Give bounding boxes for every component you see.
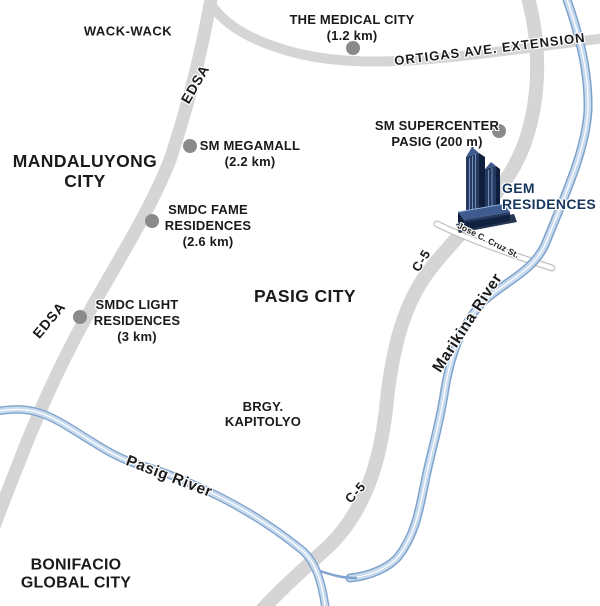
property-label-gem-residences: GEM RESIDENCES [502,181,596,212]
area-label-wack-wack: WACK-WACK [84,25,172,40]
poi-distance: (2.2 km) [200,154,300,170]
poi-distance: (2.6 km) [156,234,261,250]
poi-name: THE MEDICAL CITY [289,12,414,28]
poi-distance: (3 km) [85,329,190,345]
vicinity-map: WACK-WACK MANDALUYONG CITY PASIG CITY BR… [0,0,600,606]
poi-distance: (1.2 km) [289,28,414,44]
area-label-mandaluyong-city: MANDALUYONG CITY [5,151,165,191]
poi-label-sm-supercenter-pasig: SM SUPERCENTER PASIG (200 m) [375,118,499,150]
poi-marker-sm-megamall [183,139,197,153]
poi-label-smdc-fame: SMDC FAME RESIDENCES (2.6 km) [156,202,261,250]
poi-name: SMDC LIGHT RESIDENCES [85,297,190,329]
river-marikina-casing [350,0,588,578]
poi-name: SM SUPERCENTER [375,118,499,134]
river-marikina [350,0,588,578]
area-label-brgy-kapitolyo: BRGY. KAPITOLYO [221,400,305,430]
poi-label-sm-megamall: SM MEGAMALL (2.2 km) [200,138,300,170]
area-label-pasig-city: PASIG CITY [254,286,356,306]
river-marikina-thread [350,0,588,578]
property-name-line2: RESIDENCES [502,197,596,213]
poi-label-medical-city: THE MEDICAL CITY (1.2 km) [289,12,414,44]
poi-distance: PASIG (200 m) [375,134,499,150]
poi-name: SMDC FAME RESIDENCES [156,202,261,234]
poi-label-smdc-light: SMDC LIGHT RESIDENCES (3 km) [85,297,190,345]
property-name-line1: GEM [502,181,596,197]
poi-name: SM MEGAMALL [200,138,300,154]
area-label-bonifacio-global-city: BONIFACIO GLOBAL CITY [1,557,151,594]
